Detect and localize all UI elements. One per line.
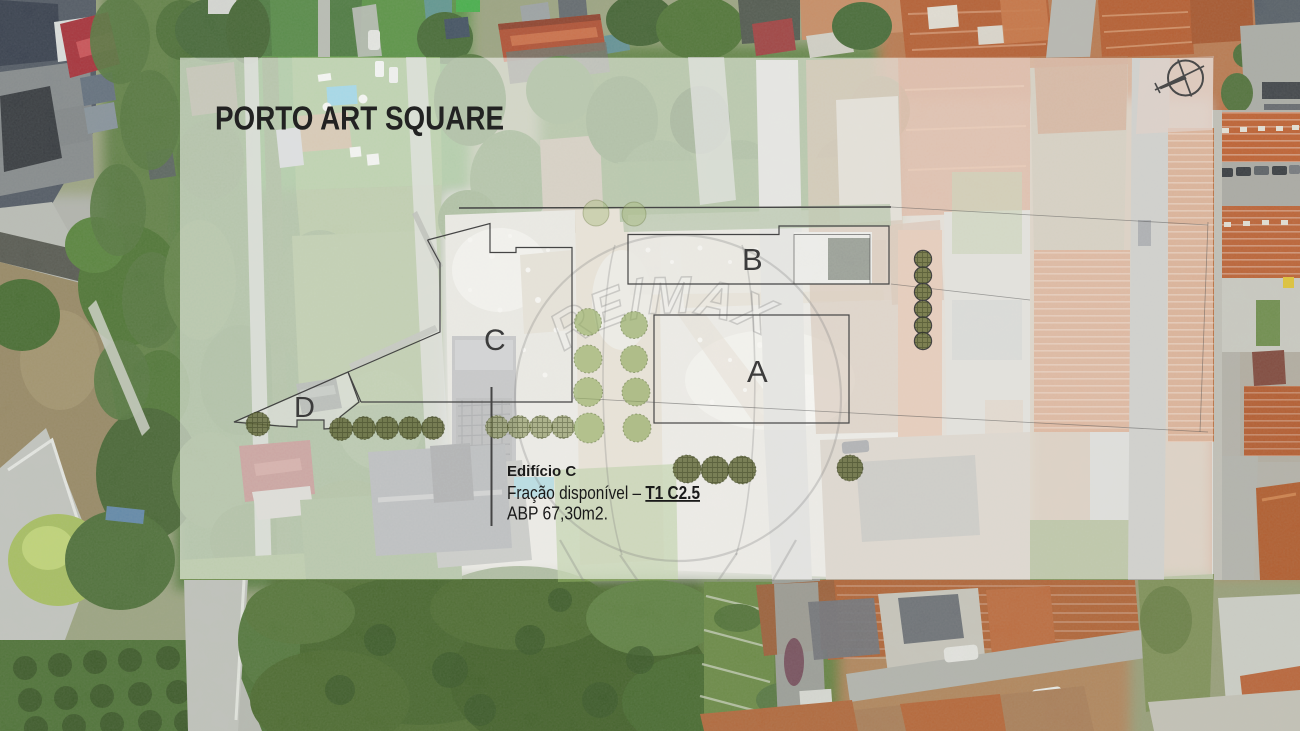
svg-text:Edifício C: Edifício C [507, 463, 576, 480]
svg-text:PORTO ART SQUARE: PORTO ART SQUARE [215, 100, 504, 137]
svg-text:C: C [484, 324, 506, 357]
svg-text:B: B [742, 242, 763, 277]
svg-text:A: A [747, 354, 768, 389]
svg-text:ABP 67,30m2.: ABP 67,30m2. [507, 504, 608, 524]
svg-text:D: D [294, 392, 315, 424]
svg-text:Fração disponível – T1 C2.5: Fração disponível – T1 C2.5 [507, 483, 700, 503]
